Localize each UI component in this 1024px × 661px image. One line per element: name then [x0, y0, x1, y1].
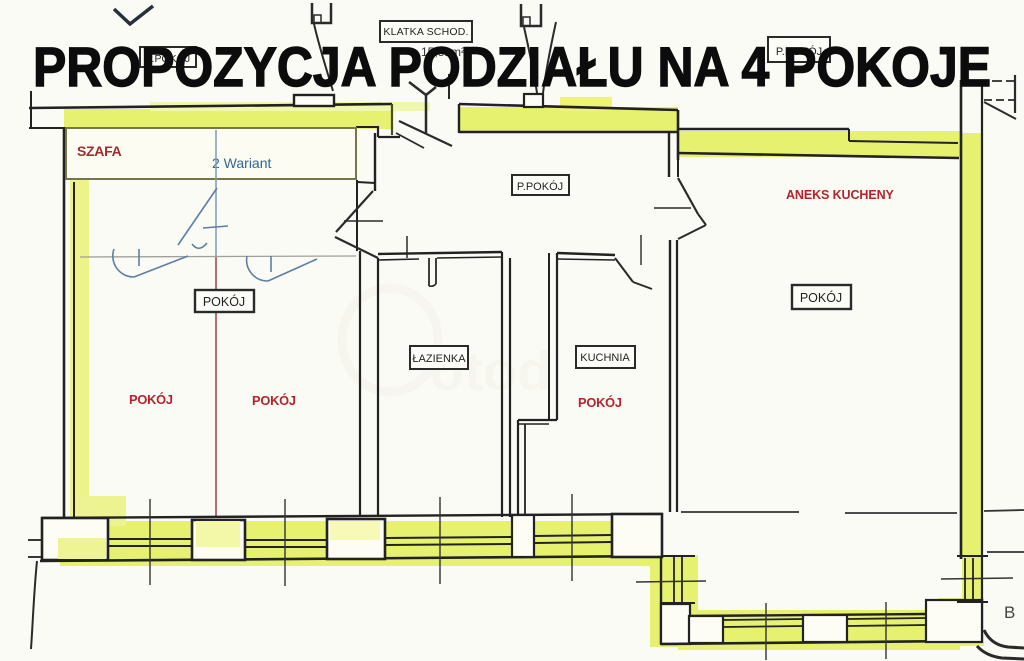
svg-text:B: B [1004, 603, 1015, 622]
svg-text:POKÓJ: POKÓJ [578, 395, 622, 410]
svg-text:ŁAZIENKA: ŁAZIENKA [412, 353, 466, 365]
svg-text:KUCHNIA: KUCHNIA [580, 352, 630, 364]
svg-text:POKÓJ: POKÓJ [800, 290, 842, 305]
svg-text:SZAFA: SZAFA [77, 143, 122, 159]
svg-text:POKÓJ: POKÓJ [129, 392, 173, 407]
svg-text:2 Wariant: 2 Wariant [212, 155, 272, 171]
svg-text:POKÓJ: POKÓJ [203, 294, 245, 309]
svg-text:ANEKS KUCHENY: ANEKS KUCHENY [786, 188, 895, 202]
svg-text:POKÓJ: POKÓJ [252, 393, 296, 408]
svg-text:PROPOZYCJA PODZIAŁU NA 4 POKOJ: PROPOZYCJA PODZIAŁU NA 4 POKOJE [33, 35, 991, 98]
svg-text:P.POKÓJ: P.POKÓJ [517, 180, 563, 193]
